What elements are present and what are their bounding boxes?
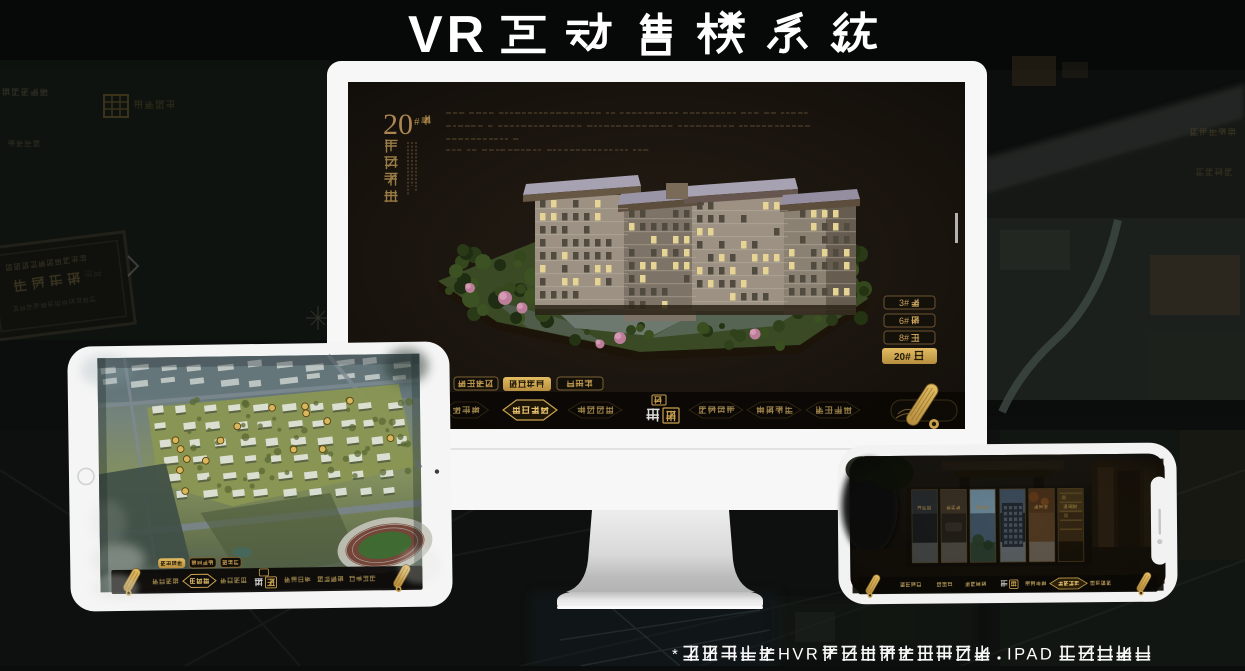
svg-text:20: 20 <box>383 108 413 141</box>
svg-text:3#: 3# <box>899 298 909 308</box>
svg-text:8#: 8# <box>899 333 909 343</box>
svg-text:6#: 6# <box>899 316 909 326</box>
svg-text:HVR: HVR <box>778 646 820 664</box>
svg-text:#: # <box>414 116 420 128</box>
svg-text:VR: VR <box>408 6 488 64</box>
svg-text:*: * <box>672 646 678 663</box>
svg-text:20#: 20# <box>894 352 911 363</box>
svg-text:IPAD: IPAD <box>1007 646 1054 664</box>
